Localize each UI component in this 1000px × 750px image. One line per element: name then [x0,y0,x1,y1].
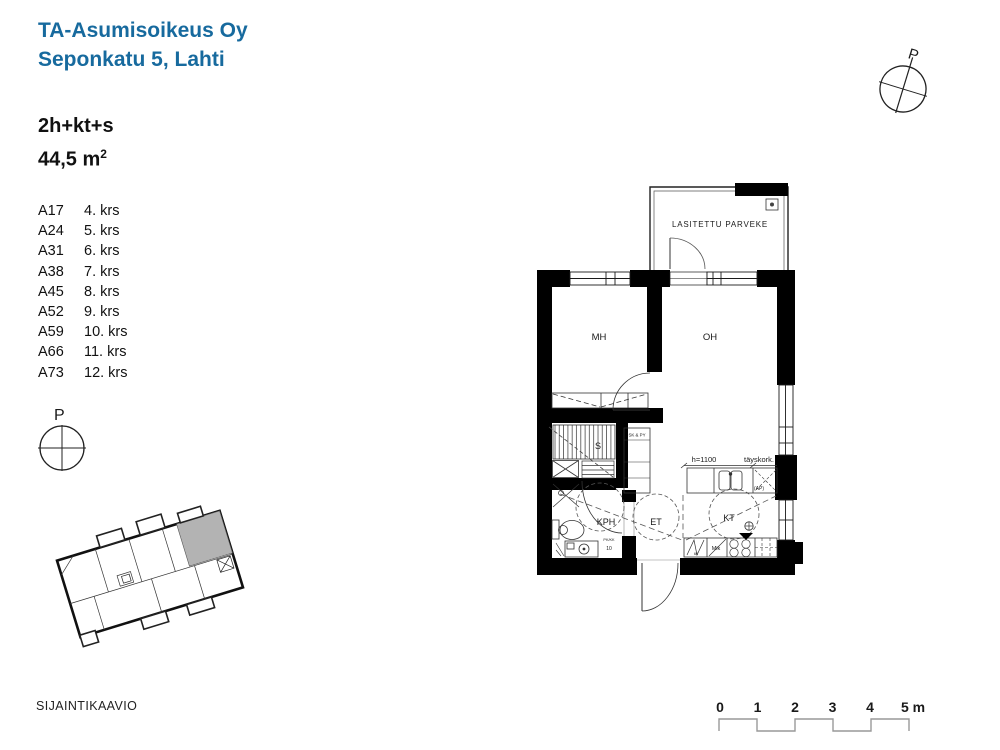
stove-icon [730,540,750,557]
compass-right-label: P [906,45,921,64]
compass-left-label: P [54,407,65,424]
scale-3: 3 [829,699,837,715]
sauna: S [549,425,615,478]
fridge-reservation-icon [755,538,777,557]
door-width-label: 10 [606,546,612,552]
mik-label: Mik [712,546,721,552]
floor-drain-icon [739,522,754,541]
siteplan-diagram [53,498,246,648]
scale-1: 1 [754,699,762,715]
balcony: LASITETTU PARVEKE [650,183,788,270]
balcony-label: LASITETTU PARVEKE [672,220,768,229]
scale-5m: 5 m [901,699,925,715]
compass-north-left: P [38,407,86,471]
scale-2: 2 [791,699,799,715]
room-label-kph: KPH [597,517,616,527]
floorplan-sheet: { "header": { "company": "TA-Asumisoikeu… [0,0,1000,750]
sauna-bench-upper [553,425,615,459]
balcony-door-sill [670,272,707,285]
room-label-oh: OH [703,332,717,343]
room-label-et: ET [650,517,662,527]
sink-icon [719,471,742,490]
balcony-door-swing [670,238,705,269]
ap-label: (AP) [754,486,764,492]
compass-north-right: P [872,40,940,121]
scale-0: 0 [716,699,724,715]
bathroom-fixtures [552,484,598,557]
room-label-sauna: S [595,441,601,451]
washing-machine-icon [556,541,598,557]
closet-label: SK & PY [628,433,645,438]
scale-bar: 0 1 2 3 4 5 m [716,699,925,731]
turning-circles [576,483,759,540]
washer-label: PK/KK [603,538,615,542]
neighbor-wall [735,183,788,196]
window-mh [570,272,630,285]
scale-4: 4 [866,699,874,715]
mh-wardrobe [552,393,648,408]
window-oh-top [707,272,757,285]
window-kt-right [779,500,793,540]
door-entry [637,560,680,611]
full-height-label: täyskork. [744,455,774,464]
sauna-bench-lower [582,461,614,478]
door-mh [613,373,650,410]
drawing-canvas: P P LASITETTU PARVEKE [0,0,1000,750]
room-label-kt: KT [723,513,735,523]
toilet-icon [552,520,584,540]
dim60-label: 60 [694,552,698,556]
sauna-stove-icon [553,461,579,478]
room-label-mh: MH [592,332,607,343]
dim-h1100-label: h=1100 [692,455,717,464]
height-dimension: h=1100 täyskork. [681,455,777,468]
window-oh-right [779,385,793,455]
